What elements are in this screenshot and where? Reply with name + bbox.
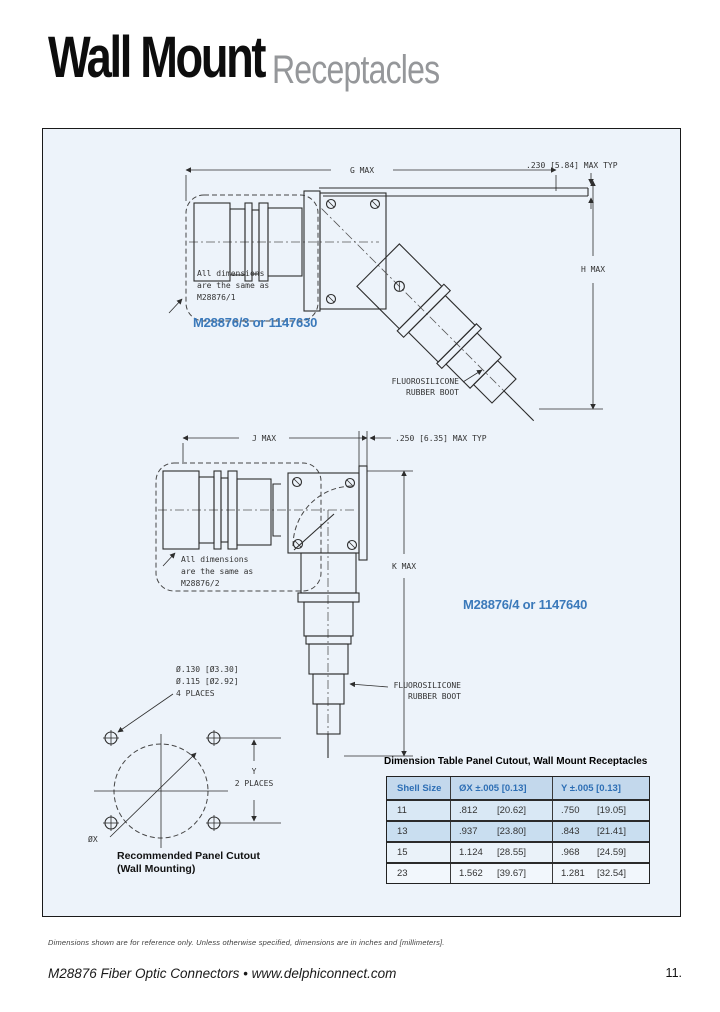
dim-k-max: K MAX xyxy=(344,471,416,756)
header-y-dim: Y ±.005 [0.13] xyxy=(553,783,649,794)
part-number-m28876-3: M28876/3 or 1147630 xyxy=(193,315,317,330)
dim-j-max: J MAX xyxy=(183,434,367,462)
table-header-row: Shell Size ØX ±.005 [0.13] Y ±.005 [0.13… xyxy=(387,777,649,799)
dim-y: Y 2 PLACES xyxy=(235,740,274,821)
note-line3: M28876/2 xyxy=(181,579,220,588)
cell-x-in: 1.562 xyxy=(451,868,497,879)
note-line2: are the same as xyxy=(181,567,253,576)
table-row: 13 .937 [23.80] .843 [21.41] xyxy=(387,820,649,841)
cell-y-mm: [32.54] xyxy=(597,868,649,879)
cell-y-in: .750 xyxy=(553,805,597,816)
cutout-caption-line1: Recommended Panel Cutout xyxy=(117,850,260,863)
hole-callout: Ø.130 [Ø3.30] Ø.115 [Ø2.92] 4 PLACES xyxy=(118,664,239,732)
cell-y-mm: [21.41] xyxy=(597,826,649,837)
flange-callout-label: .230 [5.84] MAX TYP xyxy=(526,161,618,170)
elbow-45-body xyxy=(298,185,588,444)
datasheet-page: { "page": { "title_black": "Wall Mount",… xyxy=(0,0,720,1012)
cell-y-mm: [24.59] xyxy=(597,847,649,858)
drawing-m28876-3: G MAX .230 [5.84] MAX TYP H MAX xyxy=(141,151,641,421)
dim-y-places: 2 PLACES xyxy=(235,779,274,788)
hole-places: 4 PLACES xyxy=(176,689,215,698)
table-row: 15 1.124 [28.55] .968 [24.59] xyxy=(387,841,649,862)
dim-h-max: H MAX xyxy=(539,181,605,409)
boot-label-line2: RUBBER BOOT xyxy=(406,388,459,397)
note-same-as-top: All dimensions are the same as M28876/1 xyxy=(169,269,269,313)
cell-y-mm: [19.05] xyxy=(597,805,649,816)
dim-g-max-label: G MAX xyxy=(350,166,374,175)
note-line1: All dimensions xyxy=(181,555,249,564)
boot-callout-mid: FLUOROSILICONE RUBBER BOOT xyxy=(350,681,461,701)
flange-callout-label: .250 [6.35] MAX TYP xyxy=(395,434,487,443)
dim-h-max-label: H MAX xyxy=(581,265,605,274)
dim-y-label: Y xyxy=(252,767,257,776)
page-title: Wall Mount xyxy=(48,24,264,91)
dim-x: ØX xyxy=(88,753,196,844)
hole-dia-min: Ø.115 [Ø2.92] xyxy=(176,676,239,686)
cell-shell: 15 xyxy=(387,843,451,862)
page-subtitle: Receptacles xyxy=(272,48,439,93)
dimension-table-title: Dimension Table Panel Cutout, Wall Mount… xyxy=(384,756,647,767)
page-number: 11. xyxy=(666,966,682,980)
cell-shell: 11 xyxy=(387,801,451,820)
cell-x-mm: [28.55] xyxy=(497,843,553,862)
callout-flange-top: .230 [5.84] MAX TYP xyxy=(526,161,618,209)
boot-label-line2: RUBBER BOOT xyxy=(408,692,461,701)
mating-plug xyxy=(158,471,357,549)
cutout-caption: Recommended Panel Cutout (Wall Mounting) xyxy=(117,850,260,876)
boot-45 xyxy=(298,185,557,444)
note-line2: are the same as xyxy=(197,281,269,290)
table-row: 23 1.562 [39.67] 1.281 [32.54] xyxy=(387,862,649,883)
cell-shell: 13 xyxy=(387,822,451,841)
part-number-m28876-4: M28876/4 or 1147640 xyxy=(463,597,587,612)
hole-dia-max: Ø.130 [Ø3.30] xyxy=(176,664,239,674)
dim-x-label: ØX xyxy=(88,834,98,844)
dim-j-max-label: J MAX xyxy=(252,434,276,443)
table-row: 11 .812 [20.62] .750 [19.05] xyxy=(387,799,649,820)
header-shell-size: Shell Size xyxy=(387,777,451,799)
cell-x-in: 1.124 xyxy=(451,847,497,858)
footer-brand: M28876 Fiber Optic Connectors • www.delp… xyxy=(48,966,396,981)
panel-cutout-diagram: Ø.130 [Ø3.30] Ø.115 [Ø2.92] 4 PLACES Y 2… xyxy=(76,656,301,851)
header-x-dim: ØX ±.005 [0.13] xyxy=(451,777,553,799)
cell-y-in: 1.281 xyxy=(553,868,597,879)
cell-x-mm: [39.67] xyxy=(497,864,553,883)
cell-x-in: .937 xyxy=(451,826,497,837)
reference-note: Dimensions shown are for reference only.… xyxy=(48,938,445,947)
callout-flange-mid: .250 [6.35] MAX TYP xyxy=(359,431,487,466)
cell-x-in: .812 xyxy=(451,805,497,816)
cutout-caption-line2: (Wall Mounting) xyxy=(117,863,260,876)
note-line1: All dimensions xyxy=(197,269,265,278)
boot-label-line1: FLUOROSILICONE xyxy=(394,681,462,690)
dimension-table: Shell Size ØX ±.005 [0.13] Y ±.005 [0.13… xyxy=(386,776,650,884)
cell-y-in: .843 xyxy=(553,826,597,837)
cell-x-mm: [20.62] xyxy=(497,801,553,820)
drawing-panel: G MAX .230 [5.84] MAX TYP H MAX xyxy=(42,128,681,917)
boot-callout-top: FLUOROSILICONE RUBBER BOOT xyxy=(392,370,482,397)
note-line3: M28876/1 xyxy=(197,293,236,302)
cell-x-mm: [23.80] xyxy=(497,822,553,841)
note-same-as-mid: All dimensions are the same as M28876/2 xyxy=(163,553,253,588)
dim-k-max-label: K MAX xyxy=(392,562,416,571)
cell-shell: 23 xyxy=(387,864,451,883)
cutout-circle xyxy=(94,734,228,848)
cell-y-in: .968 xyxy=(553,847,597,858)
boot-label-line1: FLUOROSILICONE xyxy=(392,377,460,386)
